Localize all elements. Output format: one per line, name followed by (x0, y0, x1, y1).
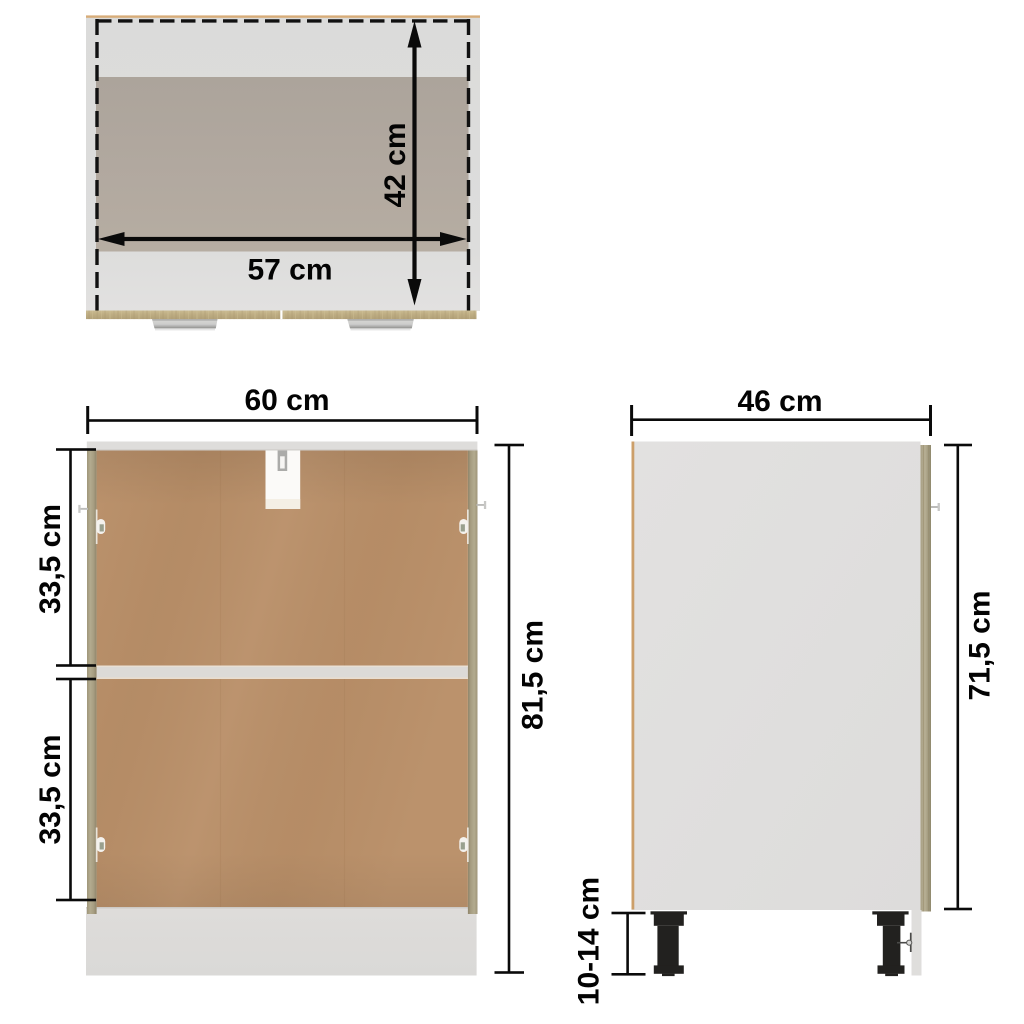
svg-text:57 cm: 57 cm (247, 254, 332, 287)
svg-text:46 cm: 46 cm (737, 385, 822, 418)
svg-text:42 cm: 42 cm (379, 122, 412, 207)
svg-text:71,5 cm: 71,5 cm (963, 590, 996, 700)
svg-text:81,5 cm: 81,5 cm (517, 620, 550, 730)
svg-text:10-14 cm: 10-14 cm (573, 877, 606, 1005)
svg-text:60 cm: 60 cm (244, 384, 329, 417)
svg-text:33,5 cm: 33,5 cm (34, 504, 67, 614)
svg-text:33,5 cm: 33,5 cm (34, 734, 67, 844)
